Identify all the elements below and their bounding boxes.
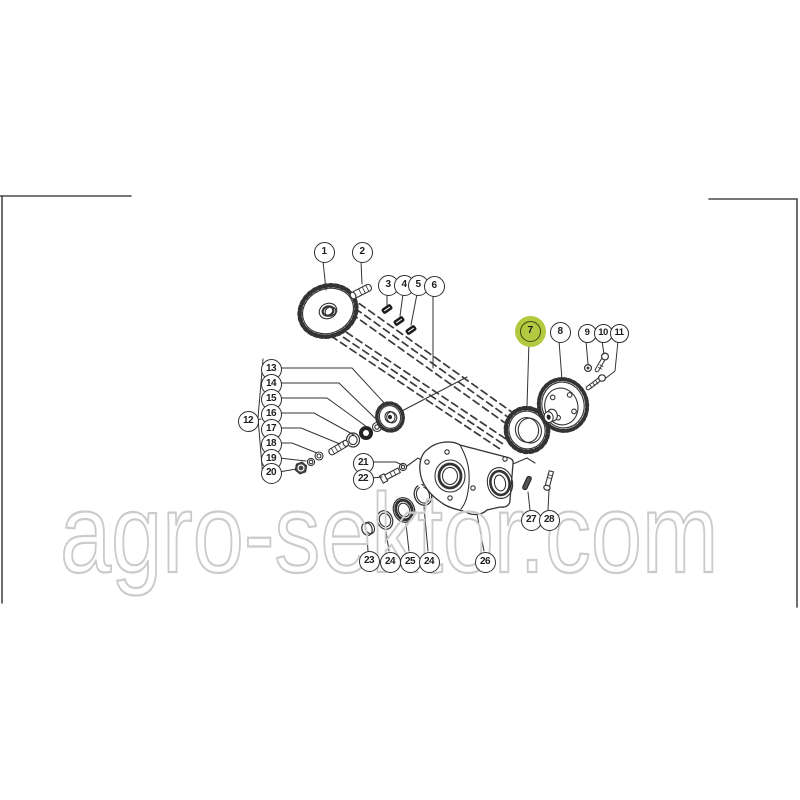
bearing-25 <box>390 495 418 526</box>
bolt-28 <box>543 470 554 490</box>
chain-upper-run <box>342 297 516 425</box>
callout-8: 8 <box>550 322 571 343</box>
callout-2: 2 <box>352 242 373 263</box>
bushing-15 <box>359 426 373 440</box>
chain-link-5 <box>405 324 417 335</box>
chain-lower-run <box>331 326 509 451</box>
chain-link-4 <box>393 315 405 326</box>
nut-20 <box>294 461 309 475</box>
seal-23 <box>360 520 376 537</box>
callout-23: 23 <box>359 551 380 572</box>
sprocket-1 <box>291 276 364 345</box>
page-frame-lines <box>0 196 797 607</box>
pin-2 <box>349 283 372 299</box>
washer-19 <box>307 458 314 465</box>
callout-6: 6 <box>424 276 445 297</box>
housing-26 <box>420 442 516 515</box>
callout-7-highlighted: 7 <box>520 321 541 342</box>
catalog-page: agro-sektor.com 1 2 3 4 5 6 7 8 9 10 11 … <box>0 0 800 800</box>
callout-28: 28 <box>539 510 560 531</box>
ring-24 <box>375 509 396 532</box>
leader-zigzag-right <box>513 458 535 464</box>
callout-11: 11 <box>610 324 629 343</box>
bolt-10 <box>597 353 608 370</box>
callout-12: 12 <box>238 411 259 432</box>
bolt-22 <box>380 467 401 483</box>
callout-26: 26 <box>475 552 496 573</box>
stud-17 <box>328 439 350 456</box>
exploded-parts-drawing <box>0 0 800 800</box>
callout-24b: 24 <box>419 552 440 573</box>
callout-22: 22 <box>353 469 374 490</box>
chain-idler-leader-line <box>398 377 467 413</box>
pin-27 <box>522 476 532 491</box>
nut-9 <box>585 365 592 372</box>
callout-20: 20 <box>261 463 282 484</box>
callout-24: 24 <box>380 552 401 573</box>
bolt-11 <box>588 375 605 388</box>
callout-25: 25 <box>400 552 421 573</box>
callout-1: 1 <box>314 242 335 263</box>
